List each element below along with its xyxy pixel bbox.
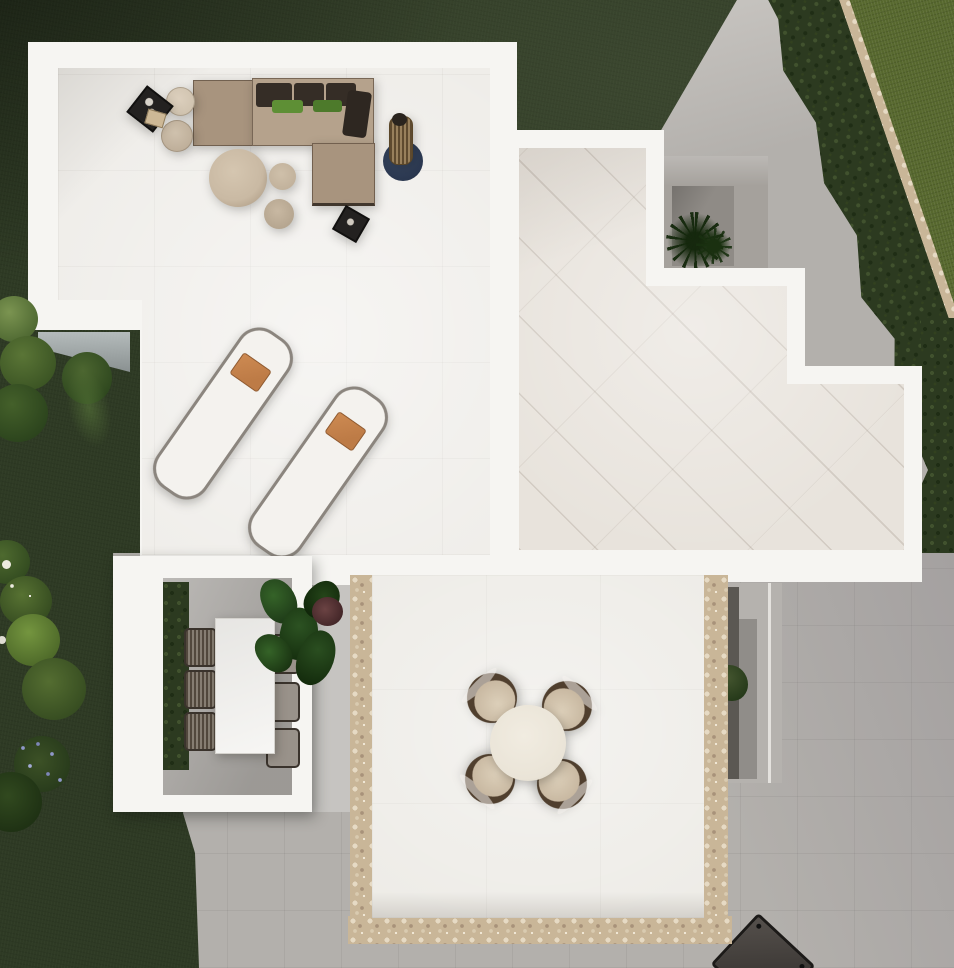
pebble-border-bottom — [348, 916, 732, 944]
aerial-villa-render — [0, 0, 954, 968]
corner-sofa-chaise — [193, 80, 255, 146]
pergola-chair-left — [184, 712, 217, 751]
patio-round-table — [490, 705, 566, 781]
white-flower — [0, 636, 6, 644]
sofa-green-pillow — [272, 100, 303, 113]
bolt-icon — [755, 923, 762, 930]
pebble-border-right — [702, 575, 728, 944]
window-frame-line — [768, 583, 771, 783]
sofa-throw-blanket — [342, 90, 372, 139]
tray-dot-icon — [144, 96, 155, 107]
white-flower — [2, 560, 11, 569]
pergola-chair-left — [184, 670, 217, 709]
lamp-cap — [392, 113, 407, 126]
palm-plant-small — [696, 228, 732, 264]
side-table-low — [161, 120, 193, 152]
corner-sofa-main — [252, 78, 374, 146]
lounger-pillow — [229, 352, 272, 393]
window-recess-wall — [739, 619, 757, 779]
corner-sofa-end — [312, 143, 375, 206]
bolt-icon — [798, 963, 805, 968]
pebble-border-left — [350, 575, 372, 944]
tray-dot-icon — [346, 217, 356, 227]
lounger-pillow — [324, 411, 367, 452]
courtyard-lightwell — [660, 156, 768, 272]
pergola-chair-left — [184, 628, 217, 667]
garden-shrub — [22, 658, 86, 720]
side-table-top — [166, 87, 195, 116]
pouf-small — [269, 163, 296, 190]
pouf-low — [264, 199, 294, 229]
garden-shrub — [0, 384, 48, 442]
window-recess — [724, 583, 782, 783]
garden-shrub — [0, 336, 56, 390]
pergola-plant-flower — [312, 597, 343, 626]
sofa-green-pillow — [313, 100, 342, 112]
coffee-table — [209, 149, 267, 207]
